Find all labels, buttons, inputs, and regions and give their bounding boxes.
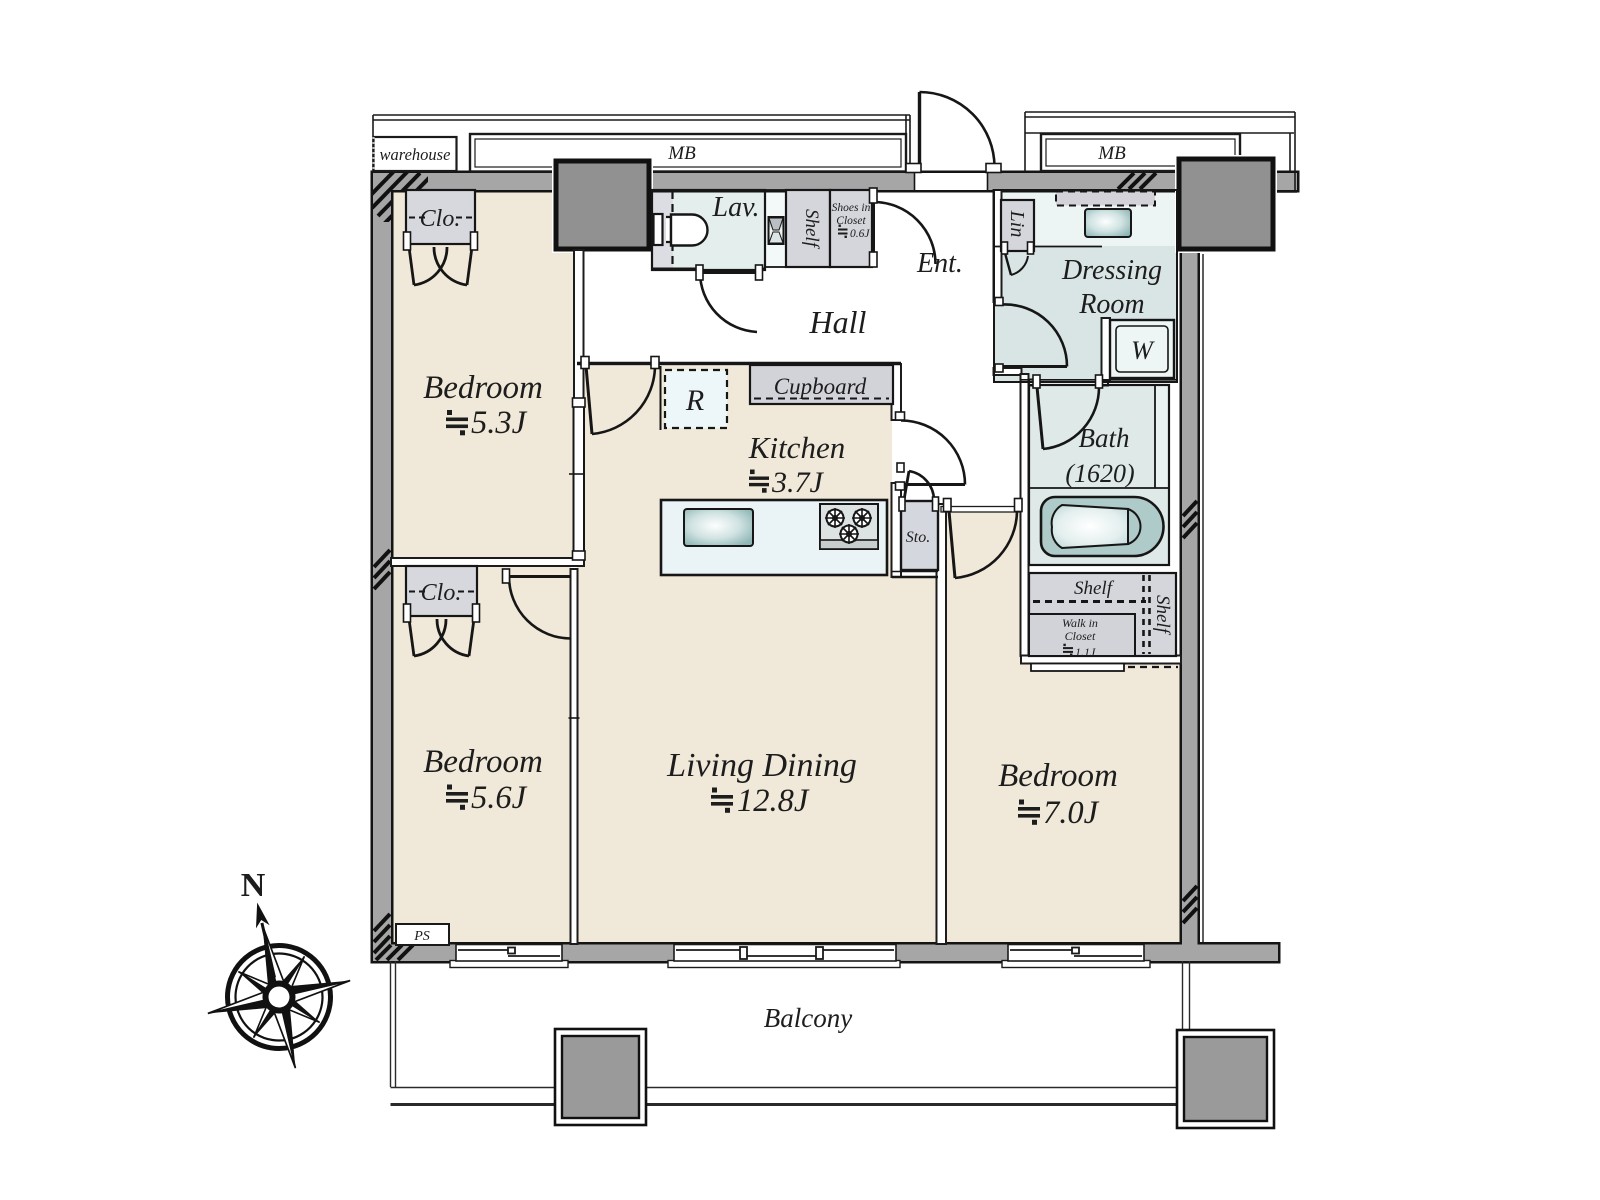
svg-text:Shelf: Shelf (1152, 595, 1173, 636)
svg-text:Shelf: Shelf (801, 209, 822, 250)
svg-text:0.6J: 0.6J (850, 228, 870, 240)
svg-text:Bedroom: Bedroom (998, 758, 1118, 794)
svg-text:5.3J: 5.3J (471, 405, 528, 441)
svg-text:Hall: Hall (809, 304, 867, 340)
svg-text:Lav.: Lav. (712, 192, 760, 223)
svg-text:Lin: Lin (1006, 210, 1028, 238)
svg-text:Bath: Bath (1079, 423, 1130, 453)
svg-text:Kitchen: Kitchen (748, 430, 845, 465)
svg-text:Shelf: Shelf (1074, 578, 1115, 599)
svg-text:Bedroom: Bedroom (423, 370, 543, 406)
svg-text:warehouse: warehouse (380, 145, 451, 164)
svg-text:Living Dining: Living Dining (666, 747, 857, 784)
svg-text:3.7J: 3.7J (771, 466, 825, 499)
svg-text:1.1J: 1.1J (1075, 645, 1096, 659)
svg-text:Dressing: Dressing (1061, 255, 1162, 286)
svg-text:Closet: Closet (1065, 629, 1096, 643)
svg-text:12.8J: 12.8J (737, 783, 810, 819)
svg-text:MB: MB (667, 143, 696, 164)
svg-text:PS: PS (413, 929, 430, 944)
svg-text:Clo.: Clo. (420, 206, 461, 232)
svg-text:7.0J: 7.0J (1043, 795, 1100, 831)
svg-text:Balcony: Balcony (764, 1003, 852, 1033)
svg-text:W: W (1131, 336, 1155, 365)
svg-text:MB: MB (1097, 143, 1126, 164)
svg-text:Sto.: Sto. (906, 529, 930, 546)
svg-text:(1620): (1620) (1065, 459, 1134, 488)
svg-text:Cupboard: Cupboard (774, 374, 867, 399)
svg-text:Room: Room (1078, 289, 1144, 320)
svg-text:Clo.: Clo. (421, 580, 462, 606)
svg-text:5.6J: 5.6J (471, 780, 528, 816)
svg-text:N: N (241, 867, 266, 904)
svg-text:Shoes in: Shoes in (832, 202, 871, 214)
svg-text:Walk in: Walk in (1062, 616, 1098, 630)
svg-text:Bedroom: Bedroom (423, 744, 543, 780)
svg-text:Ent.: Ent. (916, 248, 963, 279)
svg-text:R: R (685, 384, 704, 417)
